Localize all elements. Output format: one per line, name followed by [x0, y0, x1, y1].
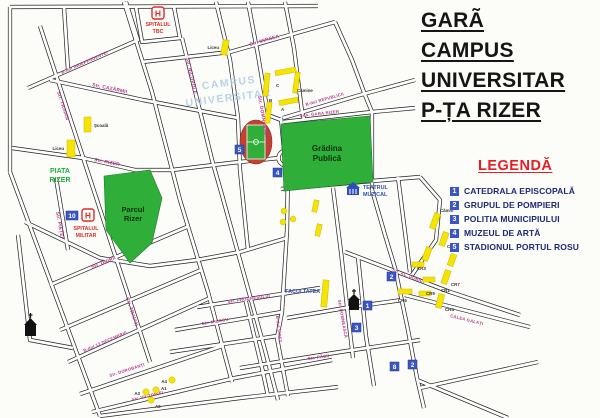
stop-a3: [143, 389, 149, 395]
legend-num-icon: 3: [450, 215, 459, 224]
gradina-publica-area: Grădina Publică: [281, 116, 373, 191]
dorm-label: CR1: [441, 288, 450, 293]
badge-8: 8: [390, 362, 399, 371]
svg-text:3: 3: [355, 325, 359, 332]
stop-a1: [153, 387, 159, 393]
dorm-label: CR4: [445, 307, 454, 312]
legend-num-icon: 1: [450, 187, 459, 196]
legend-num-icon: 5: [450, 243, 459, 252]
dorm-bar: [441, 269, 451, 284]
dorm-bar: [423, 277, 435, 282]
campus-building-b: B: [269, 98, 272, 103]
piata-rizer-label: PIATA RIZER: [50, 168, 71, 184]
facultatea-marker: [321, 280, 329, 307]
camine-label: Cămine: [297, 88, 313, 93]
dorm-label: CR3: [417, 266, 426, 271]
legend-item-label: CATEDRALA EPISCOPALĂ: [464, 186, 575, 196]
badge-5: 5: [235, 145, 244, 154]
dorm-label: CR9: [426, 291, 435, 296]
legend-item: 3 POLITIA MUNICIPIULUI: [450, 214, 598, 224]
spitalul-tbc-label-1: SPITALUL: [146, 22, 172, 28]
legend-num-icon: 4: [450, 229, 459, 238]
dorm-label: CR6: [398, 298, 407, 303]
campus-building-bar: [275, 67, 297, 76]
badge-2: 2: [387, 272, 396, 281]
stop-marker: [312, 200, 319, 213]
campus-building-a: A: [281, 107, 285, 112]
legend-item: 2 GRUPUL DE POMPIERI: [450, 200, 598, 210]
scoala-marker: [84, 117, 91, 132]
legend: LEGENDĂ 1 CATEDRALA EPISCOPALĂ 2 GRUPUL …: [450, 158, 598, 256]
hospital-icon: H: [155, 9, 161, 19]
legend-item-label: MUZEUL DE ARTĂ: [464, 228, 540, 238]
stop-marker: [280, 219, 286, 225]
stop-marker: [315, 224, 322, 237]
street-label: Str. NICOPOLE: [184, 57, 198, 95]
svg-text:1: 1: [366, 303, 370, 310]
badge-1: 1: [363, 301, 372, 310]
gradina-publica-label-2: Publică: [313, 154, 342, 163]
svg-text:2: 2: [390, 274, 394, 281]
liceu-label: Liceu: [53, 146, 65, 151]
legend-item: 5 STADIONUL PORTUL ROSU: [450, 242, 598, 252]
scoala-label: Școală: [94, 123, 109, 128]
parcul-rizer-label-1: Parcul: [122, 205, 145, 214]
map-title: GARÃ CAMPUS UNIVERSITAR P-ȚA RIZER: [421, 6, 565, 126]
svg-text:5: 5: [238, 147, 242, 154]
legend-item-label: POLITIA MUNICIPIULUI: [464, 214, 560, 224]
badge-3: 3: [352, 323, 361, 332]
spitalul-tbc-label-2: TBC: [153, 29, 164, 35]
legend-item-label: STADIONUL PORTUL ROSU: [464, 242, 579, 252]
title-line-2: CAMPUS: [421, 36, 565, 66]
dorm-bar: [398, 289, 412, 294]
legend-item: 1 CATEDRALA EPISCOPALĂ: [450, 186, 598, 196]
liceu2-label: Liceu: [208, 45, 220, 50]
stop-marker: [290, 216, 296, 222]
liceu-marker: [67, 140, 75, 157]
map-page: Parcul Rizer Grădina Publică PIATA RIZER…: [0, 0, 600, 418]
teatrul-label-1: TEATRUL: [363, 185, 388, 191]
street-label: B-dul 13 DECEMBRIE: [82, 330, 128, 353]
legend-num-icon: 2: [450, 201, 459, 210]
legend-item-label: GRUPUL DE POMPIERI: [464, 200, 560, 210]
church-icon-catedrala: [348, 289, 360, 310]
svg-text:PIATA: PIATA: [50, 168, 70, 175]
stop-a1-label: A1: [161, 386, 167, 391]
spitalul-militar-label-2: MILITAR: [76, 233, 97, 239]
stop-a2-label: A2: [155, 404, 161, 409]
svg-text:4: 4: [276, 170, 280, 177]
spitalul-militar: 10 H SPITALUL MILITAR: [66, 209, 99, 239]
stop-a4-label: A4: [161, 379, 167, 384]
stop-a4: [169, 377, 175, 383]
svg-text:RIZER: RIZER: [50, 177, 71, 184]
campus-building-c: C: [276, 83, 280, 88]
legend-items: 1 CATEDRALA EPISCOPALĂ 2 GRUPUL DE POMPI…: [450, 186, 598, 252]
spitalul-tbc: H SPITALUL TBC: [146, 7, 172, 35]
legend-item: 4 MUZEUL DE ARTĂ: [450, 228, 598, 238]
gradina-publica-label-1: Grădina: [312, 144, 343, 153]
title-line-3: UNIVERSITAR: [421, 66, 565, 96]
legend-title: LEGENDĂ: [478, 158, 598, 174]
title-line-4: P-ȚA RIZER: [421, 96, 565, 126]
title-line-1: GARÃ: [421, 6, 565, 36]
spitalul-militar-label-1: SPITALUL: [74, 226, 100, 232]
hospital-icon: H: [85, 211, 91, 221]
badge-2b: 2: [408, 360, 417, 369]
stop-a3-label: A3: [134, 391, 140, 396]
badge-10: 10: [68, 213, 76, 220]
dorm-bar: [422, 246, 432, 261]
teatrul-label-2: MUZICAL: [363, 192, 388, 198]
stop-a2: [148, 397, 154, 403]
facultatea-label: FACULTATEA: [285, 289, 320, 295]
campus-building-bar: [279, 97, 299, 105]
teatrul-muzical: TEATRUL MUZICAL: [346, 182, 388, 198]
svg-text:2: 2: [411, 362, 415, 369]
svg-text:8: 8: [393, 364, 397, 371]
street-label: Str. RIZER: [94, 157, 121, 168]
parcul-rizer-label-2: Rizer: [124, 214, 142, 223]
dorm-label: CR7: [451, 282, 460, 287]
stop-marker: [281, 208, 287, 214]
badge-4: 4: [273, 168, 282, 177]
